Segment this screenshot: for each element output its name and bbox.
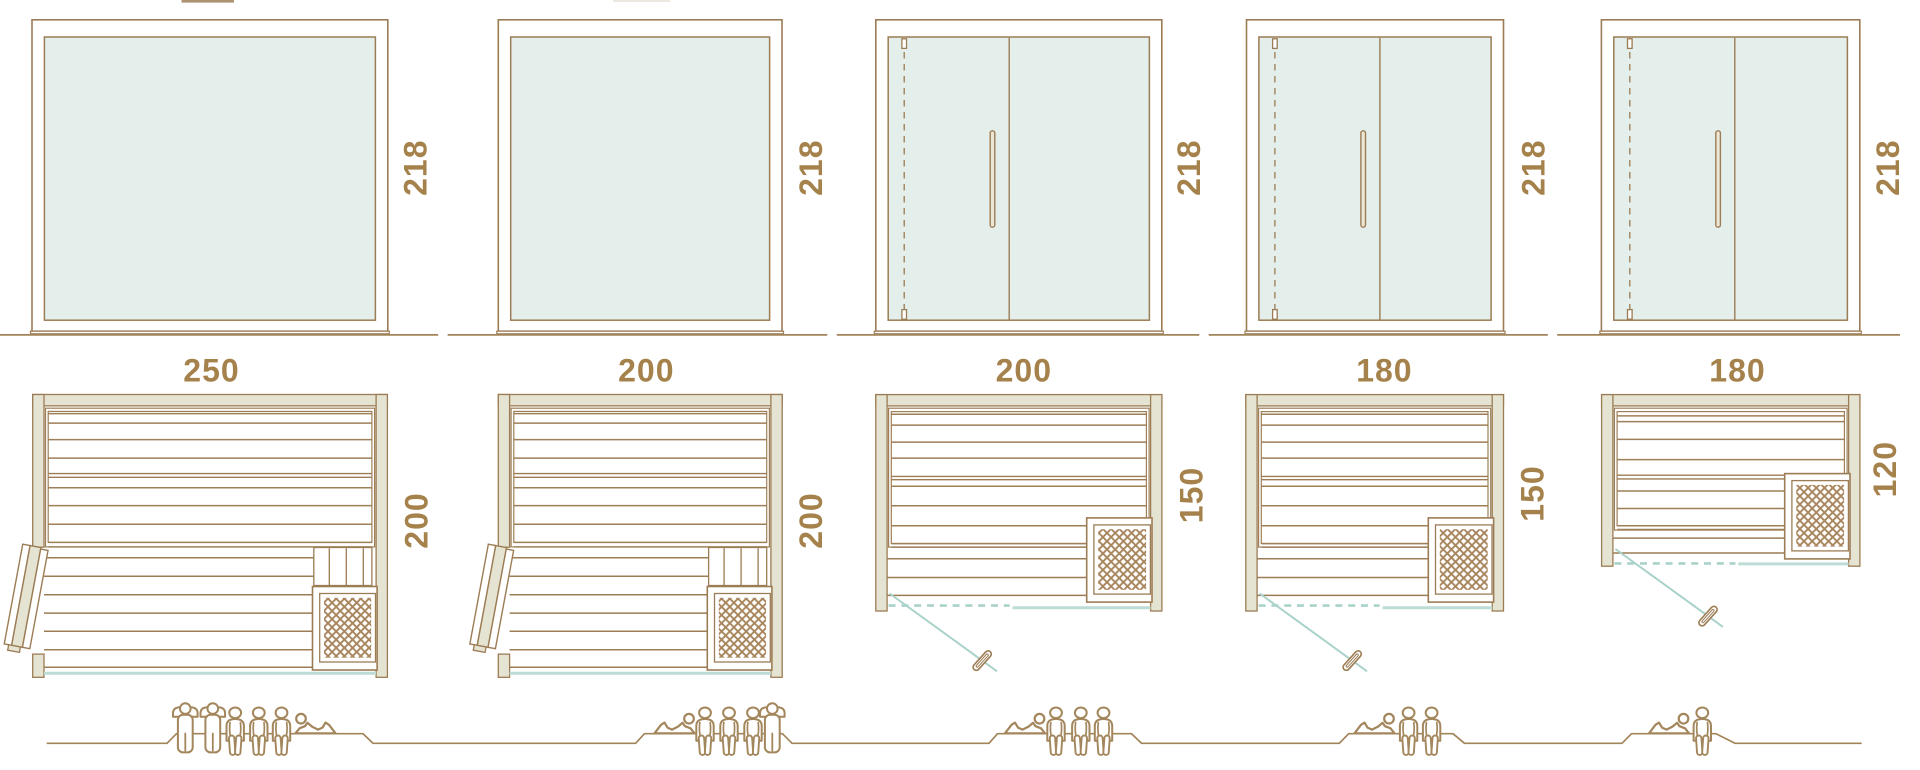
svg-text:218: 218 xyxy=(398,140,434,196)
svg-text:200: 200 xyxy=(996,353,1052,389)
svg-text:200: 200 xyxy=(618,353,674,389)
svg-text:250: 250 xyxy=(183,353,239,389)
svg-text:180: 180 xyxy=(1356,353,1412,389)
svg-text:200: 200 xyxy=(793,492,829,548)
svg-text:218: 218 xyxy=(1516,140,1552,196)
svg-text:150: 150 xyxy=(1174,467,1210,523)
svg-text:200: 200 xyxy=(399,492,435,548)
svg-text:218: 218 xyxy=(1171,140,1207,196)
svg-text:150: 150 xyxy=(1515,465,1551,521)
svg-text:120: 120 xyxy=(1867,441,1903,497)
svg-text:218: 218 xyxy=(1870,140,1906,196)
svg-text:180: 180 xyxy=(1709,353,1765,389)
svg-text:218: 218 xyxy=(793,140,829,196)
